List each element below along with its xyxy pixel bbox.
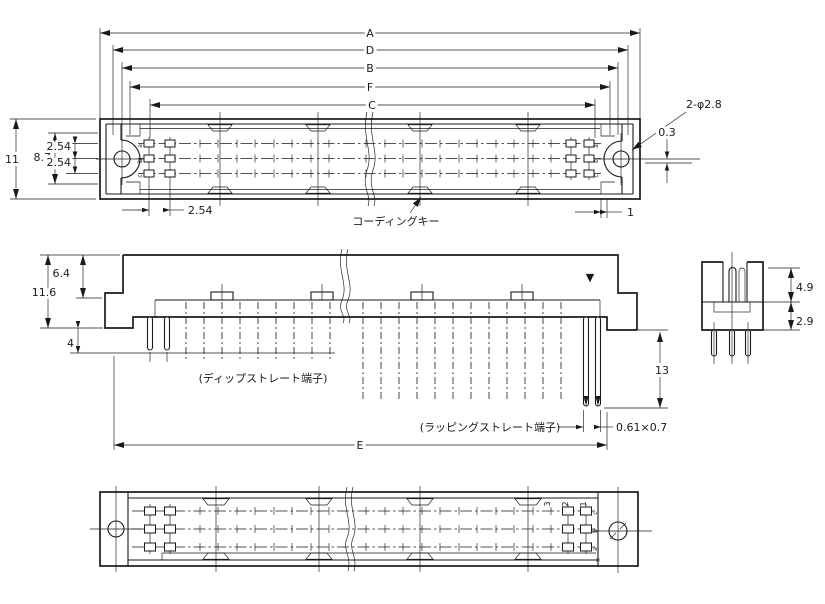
dim-label-2-54-upper: 2.54 [47, 140, 72, 153]
dim-label-0-3: 0.3 [658, 126, 676, 139]
coding-key-label: コーディングキー [352, 214, 439, 228]
dim-label-4: 4 [67, 337, 74, 350]
dim-label-6-4: 6.4 [53, 267, 71, 280]
row-label-c-bottom: c [592, 511, 599, 514]
row-label-b-left: b [137, 159, 144, 163]
drawing-page: a b c a b c A D B F C 11 8.7 2.54 2.54 2… [0, 0, 825, 599]
index-triangle-mark: ▼ [586, 271, 595, 284]
pin-number-3: 3 [543, 501, 552, 506]
dim-label-13: 13 [655, 364, 669, 377]
dim-label-F: F [367, 81, 373, 94]
row-label-a-left: a [137, 144, 144, 148]
reference-mark: ※ [595, 557, 602, 562]
dim-label-A: A [366, 27, 374, 40]
dim-label-11: 11 [5, 153, 19, 166]
row-label-a-bottom: a [592, 547, 599, 551]
pin-number-2: 2 [561, 501, 570, 506]
dim-label-E: E [357, 439, 364, 452]
dim-label-hole: 2-φ2.8 [686, 98, 722, 111]
row-label-c-right: c [593, 174, 600, 177]
dim-label-4-9: 4.9 [796, 281, 814, 294]
dim-label-2-9: 2.9 [796, 315, 814, 328]
row-label-b-bottom: b [592, 529, 599, 533]
technical-drawing: a b c a b c A D B F C 11 8.7 2.54 2.54 2… [0, 0, 825, 599]
row-label-a-right: a [593, 144, 600, 148]
dim-label-B: B [366, 62, 374, 75]
row-label-c-left: c [137, 174, 144, 177]
dim-label-2-54-lower: 2.54 [47, 156, 72, 169]
dim-label-1: 1 [627, 206, 634, 219]
dim-label-pin-section: 0.61×0.7 [616, 421, 667, 434]
dim-label-C: C [368, 99, 376, 112]
wrap-terminal-label: (ラッピングストレート端子) [420, 420, 561, 434]
pin-number-1: 1 [579, 501, 588, 506]
dim-label-2-54-columns: 2.54 [188, 204, 213, 217]
dip-terminal-label: (ディップストレート端子) [199, 371, 328, 385]
dim-label-11-6: 11.6 [32, 286, 57, 299]
row-label-b-right: b [593, 159, 600, 163]
dim-label-D: D [366, 44, 374, 57]
